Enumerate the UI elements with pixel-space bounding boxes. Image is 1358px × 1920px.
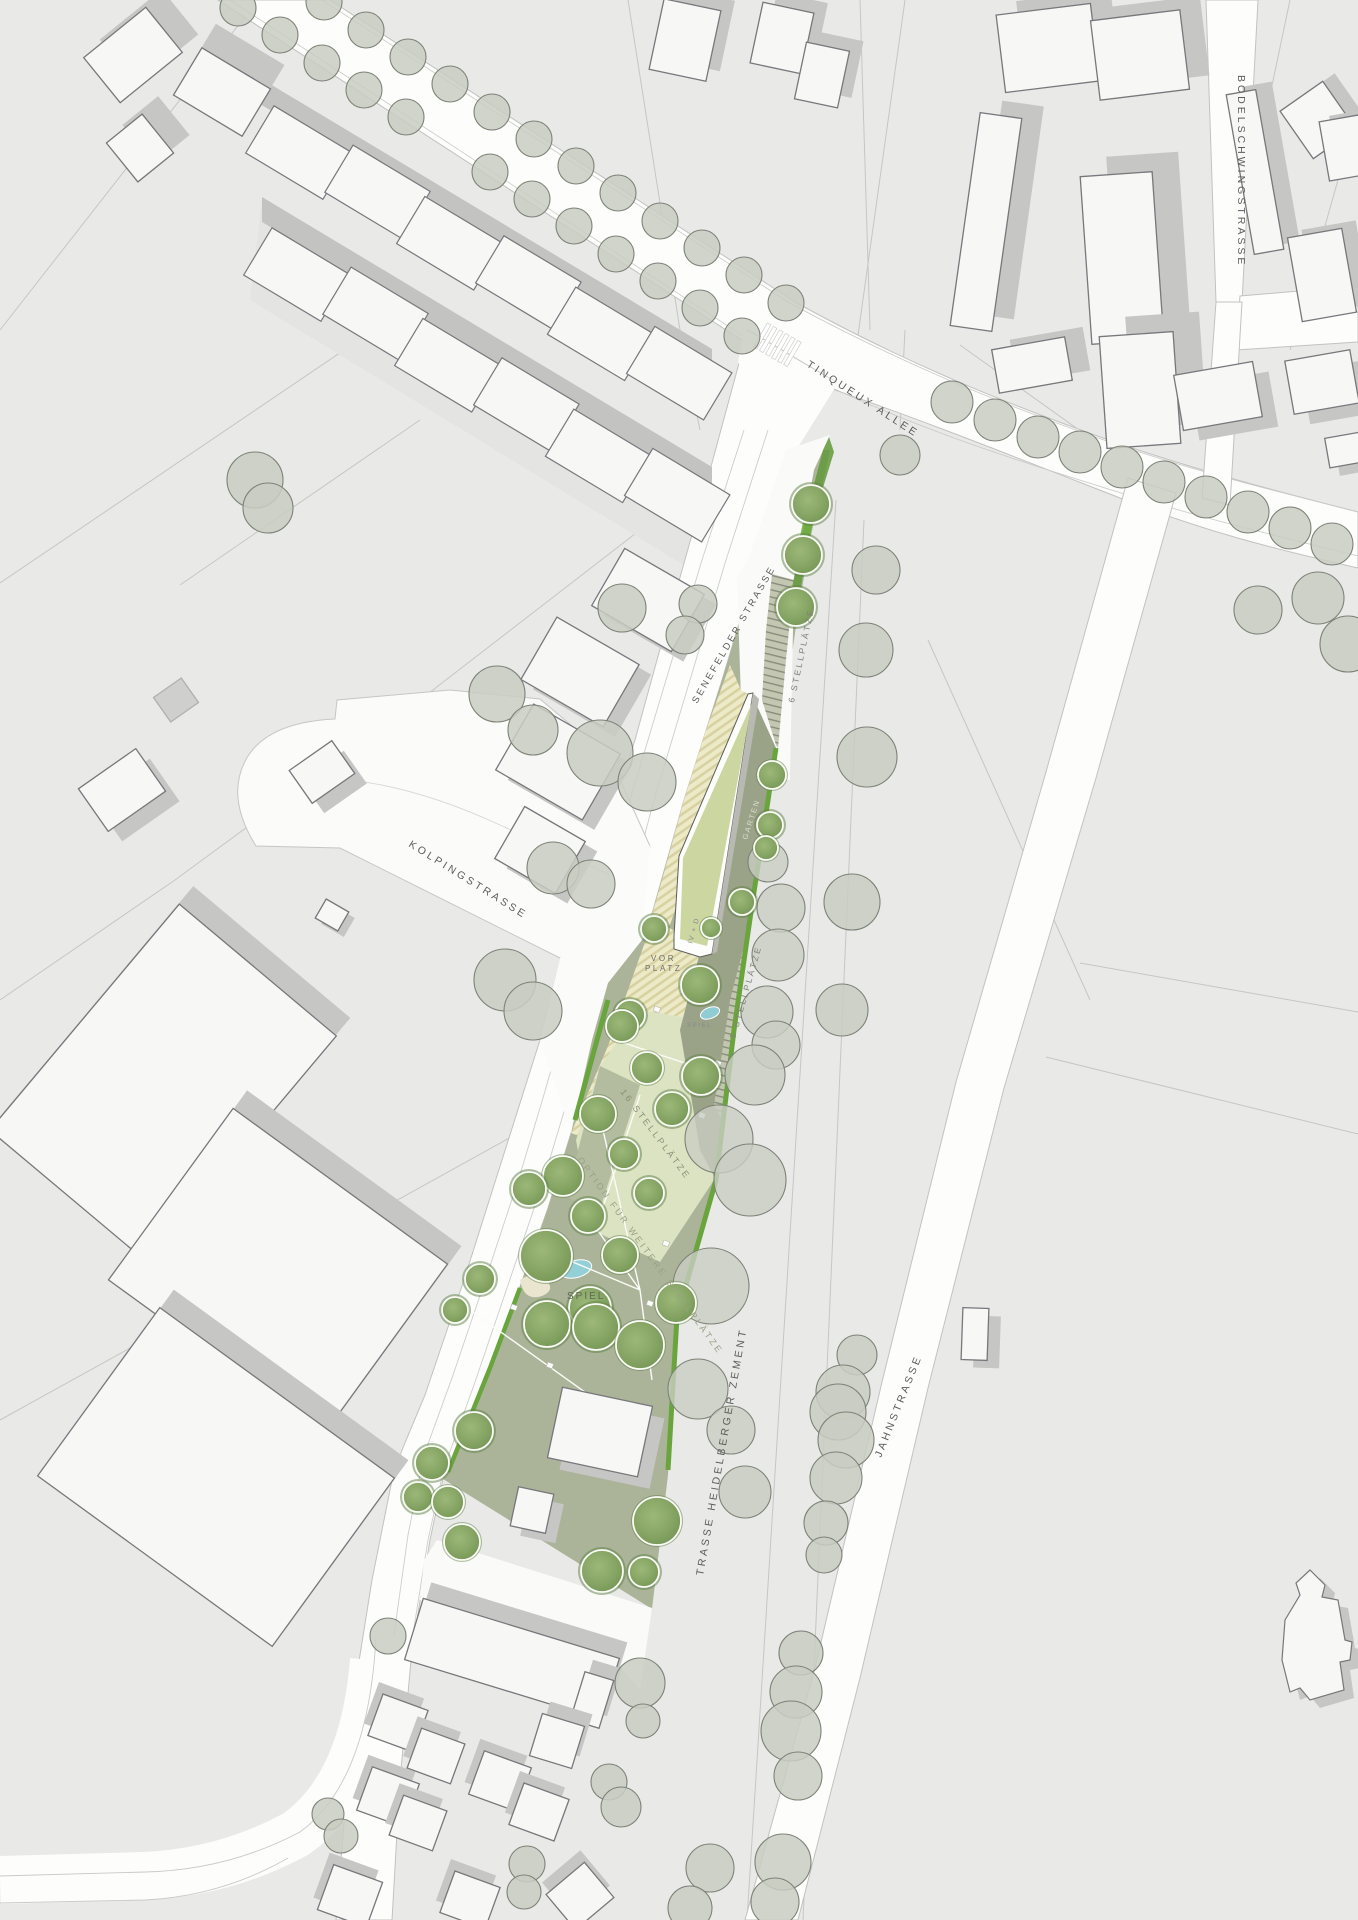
svg-text:BODELSCHWINGSTRASSE: BODELSCHWINGSTRASSE [1235, 75, 1247, 267]
svg-text:SPIEL: SPIEL [687, 1023, 712, 1029]
svg-text:VOR: VOR [651, 954, 676, 963]
svg-text:PLATZ: PLATZ [645, 964, 682, 973]
svg-text:SPIEL: SPIEL [567, 1291, 605, 1302]
